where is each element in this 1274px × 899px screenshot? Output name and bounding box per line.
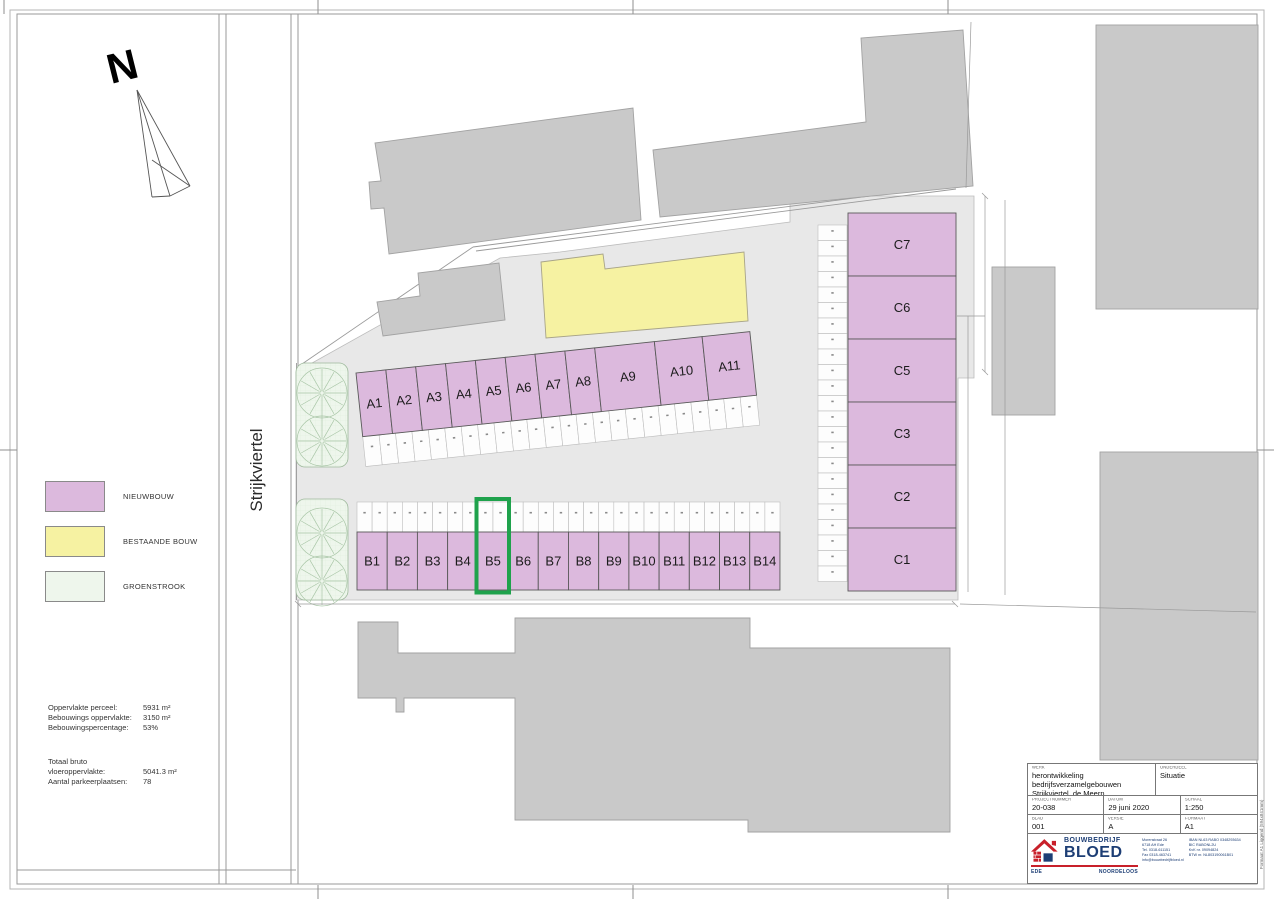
parking-dot <box>518 430 521 432</box>
unit-label-b9: B9 <box>606 554 622 569</box>
field-value: A1 <box>1185 822 1253 831</box>
field-label: BLAD <box>1032 817 1078 820</box>
parking-dot <box>502 432 505 434</box>
legend-label: BESTAANDE BOUW <box>123 537 198 546</box>
parking-dot <box>831 525 833 527</box>
parking-dot <box>831 323 833 325</box>
parking-dot <box>831 416 833 418</box>
parking-dot <box>404 442 407 444</box>
unit-label-b1: B1 <box>364 554 380 569</box>
parking-dot <box>831 401 833 403</box>
parking-dot <box>409 512 411 514</box>
parking-dot <box>732 408 735 410</box>
scale-cell: SCHAAL 1:250 <box>1181 796 1257 814</box>
street-label: Strijkviertel <box>247 428 266 511</box>
parking-cell <box>818 396 847 412</box>
stat-value: 53% <box>143 723 158 733</box>
unit-label-c6: C6 <box>894 300 911 315</box>
parking-cell <box>818 442 847 458</box>
parking-cell <box>765 502 780 532</box>
field-label: PROJECTNUMMER <box>1032 798 1078 801</box>
unit-label-a6: A6 <box>515 379 532 396</box>
field-label: VERSIE <box>1108 817 1154 820</box>
unit-label-b13: B13 <box>723 554 746 569</box>
unit-label-a4: A4 <box>455 386 472 403</box>
parking-dot <box>600 421 603 423</box>
parking-dot <box>551 427 554 429</box>
field-value: 001 <box>1032 822 1099 831</box>
stat-label: Aantal parkeerplaatsen: <box>48 777 143 787</box>
parking-cell <box>599 502 614 532</box>
building-bottom <box>358 618 950 832</box>
parking-dot <box>535 428 538 430</box>
logo-city-right: NOORDELOOS <box>1099 869 1138 875</box>
parking-cell <box>659 502 674 532</box>
north-label: N <box>102 40 143 93</box>
stat-row: Aantal parkeerplaatsen:78 <box>48 777 177 787</box>
parking-cell <box>433 502 448 532</box>
project-title-line2: Strijkviertel, de Meern <box>1032 789 1151 795</box>
logo-city-left: EDE <box>1031 869 1042 875</box>
contact-line: info@bouwbedrijfbloed.nl <box>1142 858 1184 863</box>
format-cell: FORMAAT A1 <box>1181 815 1257 833</box>
parking-dot <box>568 425 571 427</box>
parking-dot <box>831 246 833 248</box>
north-arrow-needle <box>137 90 190 197</box>
parking-cell <box>417 502 432 532</box>
parking-cell <box>644 502 659 532</box>
parking-cell <box>372 502 387 532</box>
parking-dot <box>530 512 532 514</box>
unit-label-c5: C5 <box>894 363 911 378</box>
parking-cell <box>704 502 719 532</box>
parking-dot <box>831 385 833 387</box>
parking-dot <box>666 414 669 416</box>
parking-dot <box>831 494 833 496</box>
parking-cell <box>568 502 583 532</box>
parking-dot <box>378 512 380 514</box>
format-side-note: Formaat A1 Liggend (594x841mm) <box>1260 800 1265 870</box>
parking-dot <box>486 433 489 435</box>
parking-dot <box>454 512 456 514</box>
parking-dot <box>831 509 833 511</box>
north-arrow: N <box>102 40 190 197</box>
parking-dot <box>756 512 758 514</box>
parking-cell <box>818 365 847 381</box>
parking-dot <box>590 512 592 514</box>
parking-dot <box>469 512 471 514</box>
parking-cell <box>818 349 847 365</box>
parking-dot <box>499 512 501 514</box>
parking-dot <box>439 512 441 514</box>
parking-cell <box>818 225 847 241</box>
parking-dot <box>363 512 365 514</box>
parking-dot <box>560 512 562 514</box>
sheet-cell: BLAD 001 <box>1028 815 1104 833</box>
parking-cell <box>818 473 847 489</box>
unit-label-b14: B14 <box>753 554 776 569</box>
parking-dot <box>831 556 833 558</box>
parking-cell <box>735 502 750 532</box>
parking-cell <box>818 411 847 427</box>
parking-cell <box>818 458 847 474</box>
parking-cell <box>818 272 847 288</box>
company-logo: BOUWBEDRIJF BLOED EDE NOORDELOOS <box>1028 834 1140 883</box>
field-label: FORMAAT <box>1185 817 1231 820</box>
parking-cell <box>538 502 553 532</box>
unit-label-a7: A7 <box>545 376 562 393</box>
stat-row: Bebouwings oppervlakte:3150 m² <box>48 713 171 723</box>
house-logo-icon <box>1031 837 1061 863</box>
unit-label-a5: A5 <box>485 382 502 399</box>
unit-label-c7: C7 <box>894 237 911 252</box>
unit-label-b3: B3 <box>425 554 441 569</box>
parking-dot <box>699 411 702 413</box>
parking-cell <box>818 489 847 505</box>
parking-dot <box>831 292 833 294</box>
unit-label-a3: A3 <box>425 389 442 406</box>
field-value: 20-038 <box>1032 803 1099 812</box>
parking-dot <box>620 512 622 514</box>
field-value: A <box>1108 822 1175 831</box>
unit-label-a2: A2 <box>395 392 412 409</box>
parking-cell <box>674 502 689 532</box>
unit-row-b: B1B2B3B4B5B6B7B8B9B10B11B12B13B14 <box>357 502 780 590</box>
building-right-bottom <box>1100 452 1258 760</box>
parking-cell <box>818 241 847 257</box>
parking-dot <box>545 512 547 514</box>
logo-text-line2: BLOED <box>1064 844 1123 862</box>
parking-cell <box>523 502 538 532</box>
logo-text-line1: BOUWBEDRIJF <box>1064 837 1123 844</box>
field-value: 1:250 <box>1185 803 1253 812</box>
parking-cell <box>387 502 402 532</box>
title-block-row-meta1: PROJECTNUMMER 20-038 DATUM 29 juni 2020 … <box>1028 796 1257 815</box>
parking-cell <box>357 502 372 532</box>
unit-label-c2: C2 <box>894 489 911 504</box>
unit-label-b2: B2 <box>394 554 410 569</box>
building-right-small <box>992 267 1055 415</box>
parking-cell <box>818 334 847 350</box>
title-block-row-logo: BOUWBEDRIJF BLOED EDE NOORDELOOS Morenst… <box>1028 834 1257 883</box>
parking-dot <box>831 571 833 573</box>
stat-label: Totaal bruto vloeroppervlakte: <box>48 757 143 777</box>
parking-cell <box>614 502 629 532</box>
parking-dot <box>683 413 686 415</box>
parking-cell <box>584 502 599 532</box>
parking-cell <box>818 566 847 582</box>
parking-dot <box>453 437 456 439</box>
building-top-left <box>369 108 641 254</box>
parking-dot <box>650 416 653 418</box>
stat-row: Oppervlakte perceel:5931 m² <box>48 703 171 713</box>
unit-label-a9: A9 <box>619 368 636 385</box>
parking-cell <box>553 502 568 532</box>
stat-row: Bebouwingspercentage:53% <box>48 723 171 733</box>
parking-dot <box>771 512 773 514</box>
parking-dot <box>831 277 833 279</box>
unit-label-b6: B6 <box>515 554 531 569</box>
unit-label-a10: A10 <box>669 362 694 379</box>
parking-dot <box>831 478 833 480</box>
parking-dot <box>748 406 751 408</box>
project-title-line1: herontwikkeling bedrijfsverzamelgebouwen <box>1032 771 1151 789</box>
field-label: ONDERDEEL <box>1160 766 1223 769</box>
parking-cell <box>818 256 847 272</box>
parking-cell <box>750 502 765 532</box>
parking-dot <box>665 512 667 514</box>
parking-cell <box>818 318 847 334</box>
field-label: DATUM <box>1108 798 1154 801</box>
parking-dot <box>831 463 833 465</box>
parking-dot <box>681 512 683 514</box>
field-label: SCHAAL <box>1185 798 1231 801</box>
parking-dot <box>831 261 833 263</box>
floor-area-statistics: Totaal bruto vloeroppervlakte:5041.3 m² … <box>48 757 177 787</box>
stat-value: 5041.3 m² <box>143 767 177 777</box>
legend-swatch <box>45 481 105 512</box>
unit-label-b12: B12 <box>693 554 716 569</box>
unit-label-b7: B7 <box>545 554 561 569</box>
parking-cell <box>740 395 760 427</box>
onderdeel-cell: ONDERDEEL Situatie <box>1156 764 1257 795</box>
project-cell: WERK herontwikkeling bedrijfsverzamelgeb… <box>1028 764 1156 795</box>
parking-dot <box>575 512 577 514</box>
parking-dot <box>436 439 439 441</box>
parking-cell <box>448 502 463 532</box>
parking-dot <box>387 444 390 446</box>
building-top-middle <box>653 30 973 217</box>
unit-label-b8: B8 <box>576 554 592 569</box>
stat-value: 78 <box>143 777 151 787</box>
drawing-type: Situatie <box>1160 771 1253 780</box>
parking-dot <box>831 308 833 310</box>
parking-dot <box>831 540 833 542</box>
parking-dot <box>696 512 698 514</box>
parking-cell <box>818 287 847 303</box>
title-block: WERK herontwikkeling bedrijfsverzamelgeb… <box>1027 763 1258 884</box>
parking-dot <box>831 447 833 449</box>
parking-cell <box>689 502 704 532</box>
unit-label-b4: B4 <box>455 554 471 569</box>
parking-dot <box>831 230 833 232</box>
parking-dot <box>715 409 718 411</box>
projectnumber-cell: PROJECTNUMMER 20-038 <box>1028 796 1104 814</box>
contact-column-2: IBAN NL63 RABO 0348293634BIC RABONL2UKvK… <box>1189 838 1241 863</box>
title-block-row-meta2: BLAD 001 VERSIE A FORMAAT A1 <box>1028 815 1257 834</box>
parking-cell <box>818 303 847 319</box>
logo-red-rule <box>1031 865 1138 867</box>
parking-dot <box>394 512 396 514</box>
unit-column-c: C7C6C5C3C2C1 <box>818 213 956 591</box>
parking-dot <box>584 423 587 425</box>
unit-label-b11: B11 <box>663 554 685 569</box>
parking-dot <box>420 440 423 442</box>
parking-dot <box>633 418 636 420</box>
unit-label-a11: A11 <box>717 357 741 374</box>
parking-dot <box>424 512 426 514</box>
stat-label: Bebouwingspercentage: <box>48 723 143 733</box>
parking-dot <box>469 435 472 437</box>
stat-value: 5931 m² <box>143 703 171 713</box>
parking-dot <box>741 512 743 514</box>
legend-label: NIEUWBOUW <box>123 492 174 501</box>
parking-cell <box>402 502 417 532</box>
legend-label: GROENSTROOK <box>123 582 185 591</box>
parking-cell <box>818 520 847 536</box>
title-block-row-project: WERK herontwikkeling bedrijfsverzamelgeb… <box>1028 764 1257 796</box>
parking-cell <box>818 504 847 520</box>
parking-dot <box>831 354 833 356</box>
parking-dot <box>650 512 652 514</box>
parking-cell <box>818 427 847 443</box>
field-value: 29 juni 2020 <box>1108 803 1175 812</box>
unit-label-c3: C3 <box>894 426 911 441</box>
version-cell: VERSIE A <box>1104 815 1180 833</box>
parking-dot <box>635 512 637 514</box>
parking-cell <box>493 502 508 532</box>
stat-label: Oppervlakte perceel: <box>48 703 143 713</box>
parking-cell <box>818 551 847 567</box>
parking-cell <box>478 502 493 532</box>
parking-dot <box>831 339 833 341</box>
contact-line: BTW nr. NL803190061B01 <box>1189 853 1241 858</box>
parking-dot <box>605 512 607 514</box>
parking-cell <box>818 380 847 396</box>
building-far-right-top <box>1096 25 1258 309</box>
unit-label-b5: B5 <box>485 554 501 569</box>
area-statistics: Oppervlakte perceel:5931 m² Bebouwings o… <box>48 703 171 733</box>
parking-dot <box>484 512 486 514</box>
company-contact: Morenstraat 266718 AH EdeTel. 0318-61115… <box>1140 834 1257 883</box>
unit-label-a1: A1 <box>366 395 383 412</box>
parking-cell <box>720 502 735 532</box>
unit-label-a8: A8 <box>574 373 591 390</box>
parking-dot <box>831 370 833 372</box>
unit-label-c1: C1 <box>894 552 911 567</box>
parking-dot <box>617 420 620 422</box>
parking-dot <box>726 512 728 514</box>
stat-label: Bebouwings oppervlakte: <box>48 713 143 723</box>
parking-dot <box>831 432 833 434</box>
stat-value: 3150 m² <box>143 713 171 723</box>
date-cell: DATUM 29 juni 2020 <box>1104 796 1180 814</box>
parking-dot <box>711 512 713 514</box>
legend-swatch <box>45 571 105 602</box>
unit-label-b10: B10 <box>632 554 655 569</box>
parking-cell <box>629 502 644 532</box>
legend-swatch <box>45 526 105 557</box>
field-label: WERK <box>1032 766 1113 769</box>
drawing-sheet: A1A2A3A4A5A6A7A8A9A10A11 B1B2B3B4B5B6B7B… <box>0 0 1274 899</box>
contact-column-1: Morenstraat 266718 AH EdeTel. 0318-61115… <box>1142 838 1184 863</box>
parking-cell <box>818 535 847 551</box>
parking-dot <box>371 446 374 448</box>
parking-dot <box>514 512 516 514</box>
stat-row: Totaal bruto vloeroppervlakte:5041.3 m² <box>48 757 177 777</box>
